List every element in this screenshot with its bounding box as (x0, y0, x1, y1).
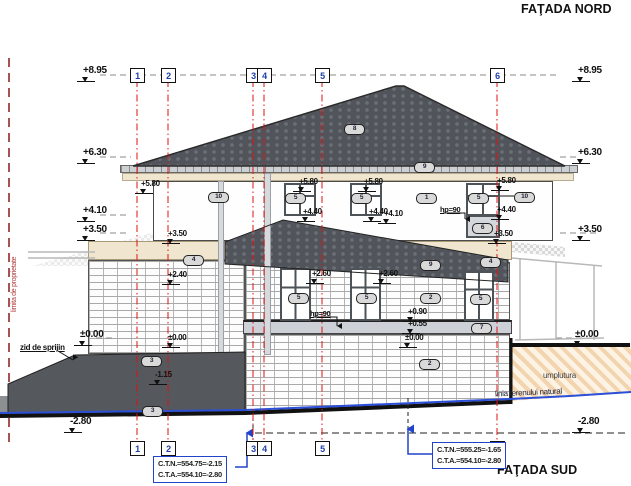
component-marker: 5 (351, 193, 372, 204)
component-marker: 2 (420, 293, 441, 304)
terrain-label: linia terenului natural (495, 387, 562, 399)
elevation-label: +3.50 (494, 230, 513, 238)
level-mark-line (569, 345, 587, 346)
facade-drawing: FAŢADA NORD FAŢADA SUD limita de proprie… (0, 0, 631, 486)
elevation-label: ±0.00 (575, 330, 598, 340)
elevation-label: +5.80 (364, 178, 383, 186)
level-info-line: C.T.N.=554.75=-2.15 (158, 459, 222, 470)
level-mark-line (491, 190, 509, 191)
level-mark-line (297, 221, 315, 222)
elevation-label: +4.10 (83, 206, 107, 216)
elevation-label: +3.50 (578, 225, 602, 235)
component-marker: 2 (419, 359, 440, 370)
elevation-label: +5.80 (299, 178, 318, 186)
south-facade-title: FAŢADA SUD (497, 463, 577, 477)
elevation-label: -2.80 (578, 417, 599, 427)
component-marker: 6 (472, 223, 493, 234)
grid-bubble-bottom: 1 (130, 441, 145, 456)
level-mark-line (77, 81, 95, 82)
level-info-line: C.T.A.=554.10=-2.80 (437, 456, 501, 467)
level-info-line: C.T.N.=555.25=-1.65 (437, 445, 501, 456)
level-mark-line (373, 283, 391, 284)
level-mark-line (162, 243, 180, 244)
elevation-label: -1.15 (155, 371, 172, 379)
elevation-label: ±0.00 (405, 334, 423, 342)
component-marker: 4 (480, 257, 501, 268)
elevation-label: +3.50 (83, 225, 107, 235)
level-mark-line (572, 81, 590, 82)
elevation-label: +5.80 (497, 177, 516, 185)
component-marker: 4 (183, 255, 204, 266)
level-mark-line (399, 347, 417, 348)
retaining-wall-label: zid de sprijin (20, 343, 65, 352)
grid-bubble-bottom: 2 (161, 441, 176, 456)
fill-label: umplutura (543, 371, 576, 380)
elevation-label: +8.95 (578, 66, 602, 76)
level-mark-line (77, 163, 95, 164)
level-mark-line (77, 240, 95, 241)
component-marker: 3 (142, 406, 163, 417)
component-marker: 7 (471, 323, 492, 334)
level-mark-line (135, 193, 153, 194)
elevation-label: +2.40 (168, 271, 187, 279)
grid-bubble-top: 2 (161, 68, 176, 83)
component-marker: 5 (285, 193, 306, 204)
elevation-label: +8.95 (83, 66, 107, 76)
level-mark-line (74, 345, 92, 346)
elevation-label: +2.60 (379, 270, 398, 278)
parapet-height-label: hp=90 (440, 205, 460, 214)
component-marker: 10 (514, 192, 535, 203)
grid-bubble-top: 1 (130, 68, 145, 83)
grid-bubble-top: 4 (257, 68, 272, 83)
level-mark-line (572, 163, 590, 164)
component-marker: 8 (344, 124, 365, 135)
elevation-label: +2.60 (312, 270, 331, 278)
component-marker: 5 (470, 294, 491, 305)
elevation-label: +5.80 (141, 180, 160, 188)
component-marker: 1 (416, 193, 437, 204)
component-marker: 9 (414, 162, 435, 173)
component-marker: 3 (141, 356, 162, 367)
level-mark-line (491, 219, 509, 220)
level-info-box: C.T.N.=555.25=-1.65C.T.A.=554.10=-2.80 (432, 442, 506, 469)
component-marker: 5 (468, 193, 489, 204)
elevation-label: +6.30 (83, 148, 107, 158)
level-info-line: C.T.A.=554.10=-2.80 (158, 470, 222, 481)
level-mark-line (488, 243, 506, 244)
elevation-label: ±0.00 (168, 334, 186, 342)
level-mark-line (572, 432, 590, 433)
elevation-label: +4.40 (497, 206, 516, 214)
grid-bubble-bottom: 4 (257, 441, 272, 456)
elevation-label: +0.55 (408, 320, 427, 328)
level-mark-line (572, 240, 590, 241)
parapet-height-label: hp=90 (310, 309, 330, 318)
level-mark-line (306, 283, 324, 284)
elevation-label: +4.40 (303, 208, 322, 216)
north-facade-title: FAŢADA NORD (521, 2, 612, 16)
annotation-layer: FAŢADA NORD FAŢADA SUD limita de proprie… (0, 0, 631, 486)
grid-bubble-top: 5 (315, 68, 330, 83)
level-mark-line (293, 191, 311, 192)
elevation-label: ±0.00 (80, 330, 103, 340)
level-mark-line (358, 191, 376, 192)
level-mark-line (363, 221, 381, 222)
component-marker: 10 (208, 192, 229, 203)
level-info-box: C.T.N.=554.75=-2.15C.T.A.=554.10=-2.80 (153, 456, 227, 483)
component-marker: 5 (288, 293, 309, 304)
level-mark-line (162, 284, 180, 285)
level-mark-line (64, 432, 82, 433)
property-line-label: limita de proprietate (11, 257, 18, 312)
level-mark-line (162, 347, 180, 348)
elevation-label: -2.80 (70, 417, 91, 427)
elevation-label: +3.50 (168, 230, 187, 238)
component-marker: 5 (356, 293, 377, 304)
elevation-label: +6.30 (578, 148, 602, 158)
elevation-label: +0.90 (408, 308, 427, 316)
grid-bubble-bottom: 5 (315, 441, 330, 456)
level-mark-line (149, 384, 167, 385)
elevation-label: +4.10 (384, 210, 403, 218)
level-mark-line (378, 223, 396, 224)
grid-bubble-top: 6 (490, 68, 505, 83)
level-mark-line (77, 221, 95, 222)
component-marker: 9 (420, 260, 441, 271)
